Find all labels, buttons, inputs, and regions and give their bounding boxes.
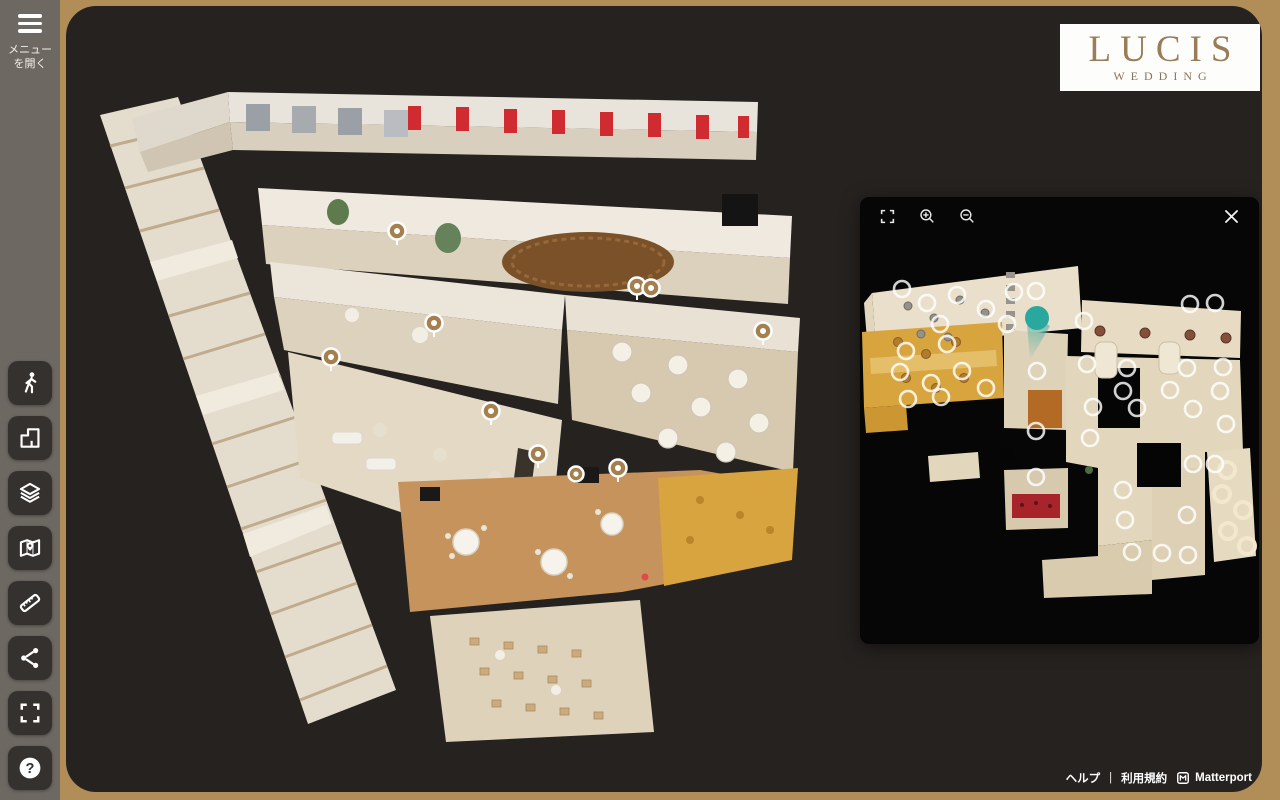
tool-list: ?: [8, 361, 52, 790]
app-frame: LUCIS WEDDING: [60, 0, 1280, 800]
menu-button-label: メニュー を開く: [0, 43, 60, 71]
matterport-brand[interactable]: Matterport: [1176, 771, 1252, 785]
layers-icon: [17, 480, 43, 506]
menu-button[interactable]: メニュー を開く: [0, 8, 60, 71]
floorplan-map[interactable]: [860, 197, 1259, 644]
fullscreen-icon: [878, 207, 897, 226]
floorplan-toolbar: [860, 197, 1259, 235]
floorplan-zoom-out-button[interactable]: [956, 205, 979, 228]
ruler-icon: [17, 590, 43, 616]
measure-button[interactable]: [8, 581, 52, 625]
logo-title: LUCIS: [1080, 32, 1241, 68]
footer-separator: |: [1109, 772, 1112, 784]
svg-text:?: ?: [26, 761, 35, 777]
inside-view-button[interactable]: [8, 361, 52, 405]
floorplan-fullscreen-button[interactable]: [876, 205, 899, 228]
floorplan-zoom-in-button[interactable]: [916, 205, 939, 228]
close-icon: [1222, 207, 1241, 226]
matterport-label: Matterport: [1195, 772, 1252, 784]
fullscreen-icon: [17, 700, 43, 726]
help-icon: ?: [17, 755, 43, 781]
floorplan-view-button[interactable]: [8, 526, 52, 570]
zoom-in-icon: [918, 207, 937, 226]
floor-5: [132, 92, 758, 172]
walk-icon: [17, 370, 43, 396]
dollhouse-view-button[interactable]: [8, 416, 52, 460]
help-link[interactable]: ヘルプ: [1066, 770, 1101, 786]
hamburger-icon: [18, 14, 42, 33]
floor-levels-button[interactable]: [8, 471, 52, 515]
floorplan-panel: [860, 197, 1259, 644]
logo-subtitle: WEDDING: [1107, 69, 1212, 84]
red-dot: [642, 574, 649, 581]
share-button[interactable]: [8, 636, 52, 680]
floorplan-close-button[interactable]: [1220, 205, 1243, 228]
floorplan-rooms: [862, 266, 1256, 598]
matterport-icon: [1176, 771, 1190, 785]
share-icon: [17, 645, 43, 671]
dollhouse-icon: [17, 425, 43, 451]
floor-1: [398, 467, 798, 742]
map-pin-icon: [17, 535, 43, 561]
fullscreen-button[interactable]: [8, 691, 52, 735]
sidebar: メニュー を開く: [0, 0, 60, 800]
viewer-3d[interactable]: LUCIS WEDDING: [66, 6, 1262, 792]
brand-logo: LUCIS WEDDING: [1060, 24, 1260, 91]
zoom-out-icon: [958, 207, 977, 226]
help-button[interactable]: ?: [8, 746, 52, 790]
terms-link[interactable]: 利用規約: [1121, 770, 1167, 786]
footer: ヘルプ | 利用規約 Matterport: [1066, 770, 1252, 786]
